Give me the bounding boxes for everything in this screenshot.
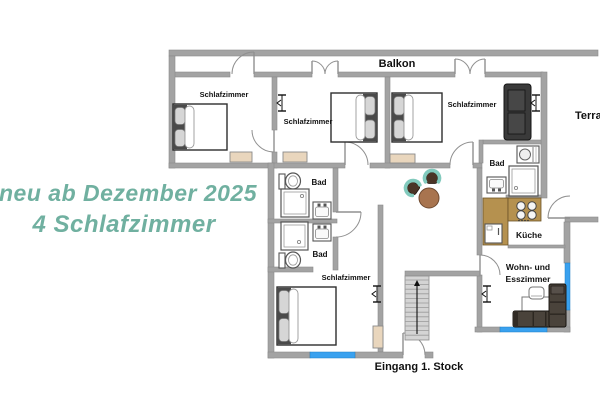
round-table [419,188,439,208]
door-swing [450,142,473,165]
corner-sofa [549,284,566,327]
room-label: Schlafzimmer [200,90,249,99]
room-label: Bad [311,178,326,187]
room-label: Bad [312,250,327,259]
fridge [485,224,502,243]
loveseat [504,84,531,140]
shower [281,222,308,250]
radiator [390,154,415,163]
room-label: Küche [516,230,542,240]
radiator [373,326,383,348]
radiator [283,152,307,162]
door-swing [252,130,274,152]
bed-bottom [277,287,336,345]
window-section-icon [482,286,491,302]
wall [169,163,345,168]
staircase [405,276,429,340]
room-label: Terrasse [575,110,600,122]
door-swing [455,59,470,74]
window [500,327,547,332]
wall [547,327,570,332]
wall [355,352,403,358]
door-swing [325,61,338,74]
wall [370,163,450,168]
shower [509,166,538,196]
floor-plan-svg: BalkonSchlafzimmerSchlafzimmerSchlafzimm… [0,0,600,420]
door-swing [480,255,500,275]
room-label: Schlafzimmer [284,117,333,126]
wall [405,271,480,276]
sink [313,202,331,219]
dining-chair [403,178,422,198]
wall [169,50,598,56]
bed-right [392,93,442,142]
wall [268,352,310,358]
door-swing [336,212,361,237]
wall [268,163,274,358]
toilet [279,252,301,268]
wall [473,163,482,168]
room-label: Schlafzimmer [322,273,371,282]
wall [479,140,483,163]
door-swing [548,196,570,218]
room-label: Esszimmer [506,274,552,284]
desk-chair [529,287,544,299]
wall [483,140,541,144]
sink [487,177,506,193]
radiator [230,152,252,162]
room-label: Wohn- und [506,262,550,272]
wall [564,222,570,263]
bed-middle [331,93,377,142]
room-label: Balkon [379,58,416,70]
wall [333,237,338,270]
wall [385,77,390,168]
toilet [279,173,301,189]
window [310,352,355,358]
dining-chair [425,171,440,184]
wall [541,72,547,198]
wall [333,168,338,212]
wall [485,72,543,77]
wall [254,72,312,77]
sink [313,224,331,241]
wall [477,275,482,332]
washbasin-unit [517,146,539,163]
room-label: Schlafzimmer [448,100,497,109]
wall [508,245,565,248]
wall [477,168,482,255]
room-label: Eingang 1. Stock [375,361,465,373]
door-swing [312,61,325,74]
promo-text-line1: neu ab Dezember 2025 [0,180,257,207]
wall [338,72,455,77]
door-swing [470,59,485,74]
wall [475,327,500,332]
bed-top-left [173,104,227,150]
promo-text-line2: 4 Schlafzimmer [32,211,215,239]
room-label: Bad [489,159,504,168]
door-swing [345,142,368,165]
wall [272,77,277,130]
window-section-icon [277,95,286,111]
wall [170,72,230,77]
wall [425,352,433,358]
shower [281,189,309,217]
window-section-icon [531,95,540,111]
floor-plan-page: BalkonSchlafzimmerSchlafzimmerSchlafzimm… [0,0,600,420]
